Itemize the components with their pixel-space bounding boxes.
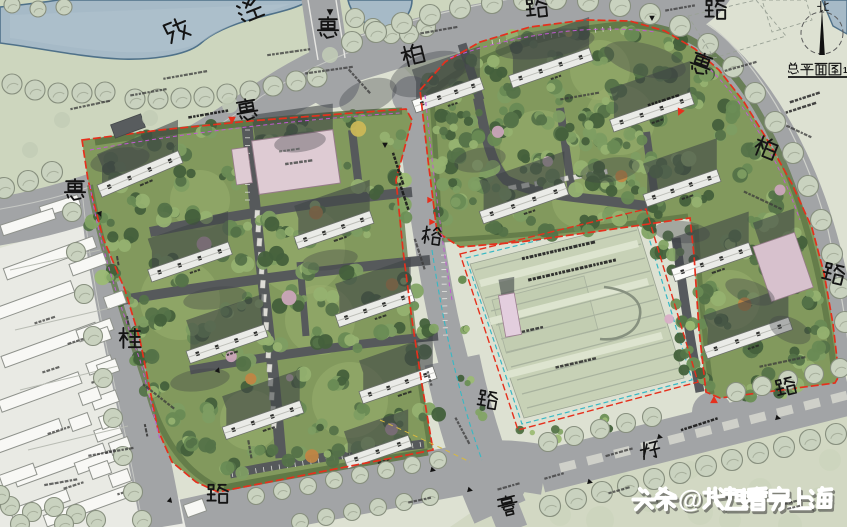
svg-text:@: @ xyxy=(678,486,702,514)
svg-text:1:5: 1:5 xyxy=(843,66,847,75)
